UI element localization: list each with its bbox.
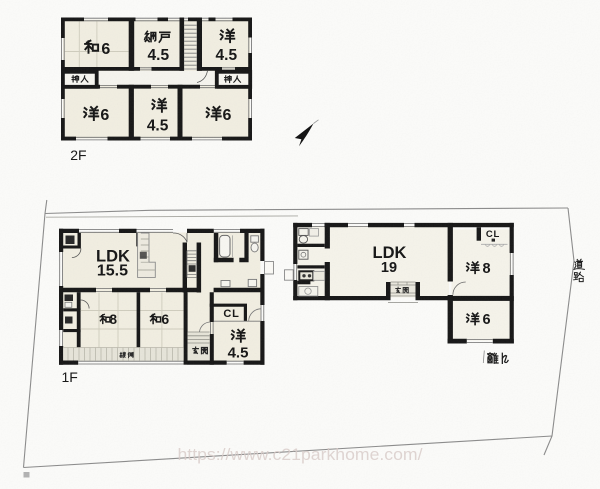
- svg-text:https://www.c21parkhome.com/: https://www.c21parkhome.com/: [178, 446, 423, 464]
